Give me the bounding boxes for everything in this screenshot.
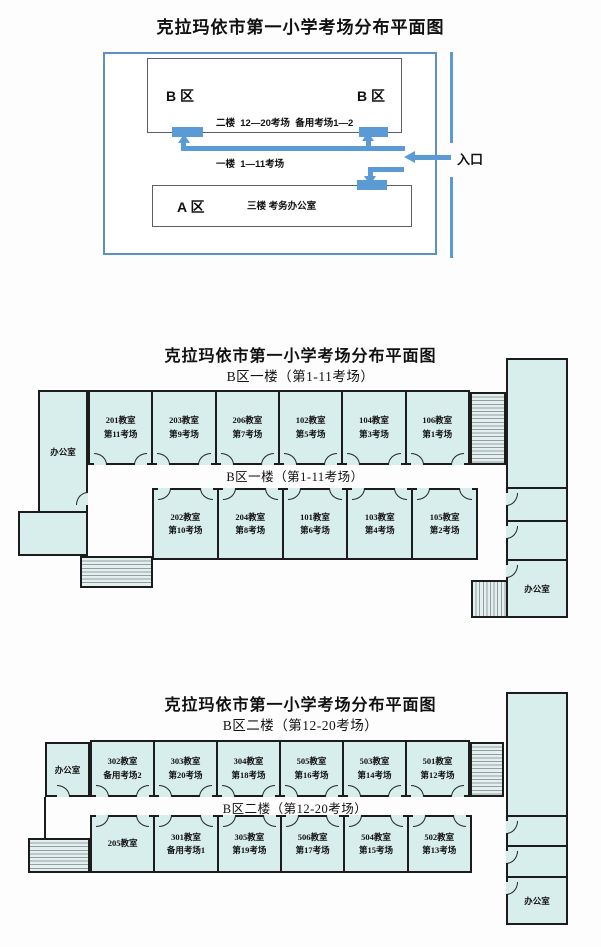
door-arc [288, 488, 301, 500]
exam-room: 103教室第4考场 [348, 490, 413, 558]
room-number: 106教室 [422, 414, 452, 427]
door-arc [94, 453, 107, 465]
floor2-top-row: 302教室备用考场2303教室第20考场304教室第18考场505教室第16考场… [90, 740, 470, 797]
floor1-stairs-bottom-right [471, 580, 508, 618]
door-arc [265, 488, 278, 500]
floor1-section: 克拉玛依市第一小学考场分布平面图 B区一楼（第1-11考场） 办公室 201教室… [0, 310, 601, 655]
room-number: 201教室 [104, 414, 138, 427]
room-label: 503教室第14考场 [357, 755, 391, 781]
room-label: 303教室第20考场 [168, 755, 202, 781]
wing-room [508, 487, 566, 520]
room-number: 503教室 [357, 755, 391, 768]
exam-room: 101教室第6考场 [284, 490, 349, 558]
floor2-office-left: 办公室 [45, 742, 90, 797]
door-arc [411, 453, 424, 465]
room-session: 第15考场 [359, 844, 393, 857]
exam-room: 203教室第9考场 [153, 392, 216, 463]
fence-bottom [450, 177, 453, 258]
room-number: 203教室 [169, 414, 199, 427]
room-session: 第8考场 [235, 524, 265, 537]
room-number: 103教室 [365, 511, 395, 524]
room-label: 103教室第4考场 [365, 511, 395, 537]
room-session: 第7考场 [232, 428, 262, 441]
door-arc [451, 453, 464, 465]
room-label: 201教室第11考场 [104, 414, 138, 440]
room-label: 506教室第17考场 [296, 831, 330, 857]
exam-room: 206教室第7考场 [217, 392, 280, 463]
exam-room: 202教室第10考场 [154, 490, 219, 558]
door-arc [394, 488, 407, 500]
room-number: 102教室 [296, 414, 326, 427]
room-number: 305教室 [232, 831, 266, 844]
door-arc [159, 815, 172, 827]
door-arc [221, 453, 234, 465]
exam-room: 104教室第3考场 [343, 392, 406, 463]
exam-room: 504教室第15考场 [345, 817, 408, 871]
door-arc [348, 785, 361, 797]
door-arc [263, 815, 276, 827]
door-arc [286, 815, 299, 827]
entrance-label: 入口 [457, 149, 483, 168]
door-arc [159, 785, 172, 797]
room-label: 203教室第9考场 [169, 414, 199, 440]
a-route-bar [368, 167, 404, 172]
door-arc [506, 526, 518, 539]
floor-plan-page: 克拉玛依市第一小学考场分布平面图 B 区 二楼 12—20考场 备用考场1—2 … [0, 0, 601, 947]
room-number: 505教室 [294, 755, 328, 768]
room-number: 301教室 [167, 831, 205, 844]
floor2-right-wing: 办公室 [506, 692, 568, 925]
room-number: 502教室 [422, 831, 456, 844]
door-arc [96, 785, 109, 797]
floor2-office-right: 办公室 [508, 876, 566, 923]
overview-title: 克拉玛依市第一小学考场分布平面图 [0, 13, 601, 38]
entrance-arrow-bar [415, 155, 451, 160]
floor2-section: 克拉玛依市第一小学考场分布平面图 B区二楼（第12-20考场） 办公室 302教… [0, 655, 601, 947]
wing-room [508, 815, 566, 845]
a-building-info: 三楼 考务办公室 [247, 200, 316, 214]
door-arc [329, 488, 342, 500]
door-arc [76, 492, 88, 505]
room-session: 第6考场 [300, 524, 330, 537]
room-session: 第20考场 [168, 769, 202, 782]
room-session: 第17考场 [296, 844, 330, 857]
room-session: 第9考场 [169, 428, 199, 441]
room-number: 202教室 [168, 511, 202, 524]
office-label: 办公室 [50, 446, 76, 458]
door-arc [459, 488, 472, 500]
floor1-bottom-row: 202教室第10考场204教室第8考场101教室第6考场103教室第4考场105… [152, 488, 478, 560]
room-session: 第3考场 [359, 428, 389, 441]
door-arc [262, 785, 275, 797]
door-arc [222, 785, 235, 797]
door-arc [157, 453, 170, 465]
room-number: 206教室 [232, 414, 262, 427]
door-arc [506, 493, 518, 506]
arrow-up-right-icon [362, 132, 374, 141]
exam-room: 501教室第12考场 [407, 742, 468, 795]
room-session: 备用考场1 [167, 844, 205, 857]
exam-room: 106教室第1考场 [407, 392, 468, 463]
room-session: 第13考场 [422, 844, 456, 857]
door-arc [199, 785, 212, 797]
floor1-stairs-left [80, 556, 153, 588]
room-label: 505教室第16考场 [294, 755, 328, 781]
floor1-corridor-label: B区一楼（第1-11考场） [120, 466, 470, 485]
floor2-stairs-left [28, 838, 90, 873]
route-bar [181, 146, 405, 151]
room-label: 504教室第15考场 [359, 831, 393, 857]
door-arc [506, 851, 518, 864]
room-label: 301教室备用考场1 [167, 831, 205, 857]
wing-room [508, 520, 566, 559]
b-info-line2: 一楼 1—11考场 [216, 158, 353, 172]
room-session: 第16考场 [294, 769, 328, 782]
door-arc [57, 785, 70, 797]
room-session: 第18考场 [231, 769, 265, 782]
exam-room: 305教室第19考场 [219, 817, 282, 871]
room-label: 204教室第8考场 [235, 511, 265, 537]
room-label: 304教室第18考场 [231, 755, 265, 781]
room-number: 204教室 [235, 511, 265, 524]
door-arc [324, 453, 337, 465]
room-label: 102教室第5考场 [296, 414, 326, 440]
door-arc [134, 453, 147, 465]
exam-room: 301教室备用考场1 [155, 817, 218, 871]
fence-top [450, 52, 453, 143]
room-session: 第10考场 [168, 524, 202, 537]
floor1-office-left: 办公室 [38, 390, 88, 513]
a-door [357, 180, 387, 190]
door-arc [347, 453, 360, 465]
door-arc [388, 785, 401, 797]
office-label: 办公室 [524, 895, 550, 907]
room-label: 104教室第3考场 [359, 414, 389, 440]
arrow-left-entrance-icon [404, 151, 415, 163]
door-arc [388, 453, 401, 465]
floor2-plan: 办公室 302教室备用考场2303教室第20考场304教室第18考场505教室第… [0, 740, 601, 940]
arrow-up-left-icon [178, 134, 190, 143]
door-arc [417, 488, 430, 500]
room-session: 第11考场 [104, 428, 138, 441]
room-number: 506教室 [296, 831, 330, 844]
office-label: 办公室 [55, 764, 81, 776]
room-session: 第14考场 [357, 769, 391, 782]
room-number: 501教室 [420, 755, 454, 768]
exam-room: 303教室第20考场 [155, 742, 218, 795]
exam-room: 502教室第13考场 [409, 817, 470, 871]
room-number: 205教室 [108, 837, 138, 850]
exam-room: 506教室第17考场 [282, 817, 345, 871]
exam-room: 102教室第5考场 [280, 392, 343, 463]
exam-room: 205教室 [92, 817, 155, 871]
floor1-left-annex [18, 511, 88, 556]
room-number: 101教室 [300, 511, 330, 524]
door-arc [198, 453, 211, 465]
exam-room: 304教室第18考场 [218, 742, 281, 795]
door-arc [326, 815, 339, 827]
b-building-info: 二楼 12—20考场 备用考场1—2 一楼 1—11考场 [216, 89, 353, 199]
room-number: 302教室 [103, 755, 141, 768]
room-label: 502教室第13考场 [422, 831, 456, 857]
room-session: 第12考场 [420, 769, 454, 782]
floor2-stairs-right [470, 742, 504, 797]
room-session: 第2考场 [430, 524, 460, 537]
door-arc [390, 815, 403, 827]
room-label: 205教室 [108, 837, 138, 850]
b-zone-left-label: B 区 [166, 86, 194, 106]
exam-room: 302教室备用考场2 [92, 742, 155, 795]
b-info-line1: 二楼 12—20考场 备用考场1—2 [216, 117, 353, 131]
room-session: 第5考场 [296, 428, 326, 441]
a-zone-label: A 区 [177, 197, 204, 217]
room-number: 304教室 [231, 755, 265, 768]
room-label: 101教室第6考场 [300, 511, 330, 537]
door-arc [506, 882, 518, 895]
room-number: 504教室 [359, 831, 393, 844]
route-stem-right [366, 140, 371, 148]
floor1-right-wing: 办公室 [506, 358, 568, 618]
room-label: 305教室第19考场 [232, 831, 266, 857]
overview-section: 克拉玛依市第一小学考场分布平面图 B 区 二楼 12—20考场 备用考场1—2 … [0, 0, 601, 310]
room-label: 105教室第2考场 [430, 511, 460, 537]
door-arc [506, 821, 518, 834]
door-arc [413, 815, 426, 827]
wing-room [508, 694, 566, 815]
door-arc [136, 785, 149, 797]
door-arc [285, 785, 298, 797]
door-arc [325, 785, 338, 797]
floor1-top-row: 201教室第11考场203教室第9考场206教室第7考场102教室第5考场104… [88, 390, 470, 465]
wall-segment [44, 797, 46, 838]
door-arc [349, 815, 362, 827]
door-arc [451, 785, 464, 797]
b-zone-right-label: B 区 [357, 86, 385, 106]
wing-room [508, 845, 566, 876]
room-number: 105教室 [430, 511, 460, 524]
door-arc [200, 488, 213, 500]
room-session: 第1考场 [422, 428, 452, 441]
door-arc [284, 453, 297, 465]
room-number: 303教室 [168, 755, 202, 768]
room-label: 302教室备用考场2 [103, 755, 141, 781]
floor1-plan: 办公室 201教室第11考场203教室第9考场206教室第7考场102教室第5考… [0, 390, 601, 630]
exam-room: 105教室第2考场 [413, 490, 476, 558]
exam-room: 204教室第8考场 [219, 490, 284, 558]
wing-room [508, 360, 566, 487]
exam-room: 505教室第16考场 [281, 742, 344, 795]
floor2-bottom-row: 205教室301教室备用考场1305教室第19考场506教室第17考场504教室… [90, 815, 472, 873]
room-session: 第19考场 [232, 844, 266, 857]
room-label: 501教室第12考场 [420, 755, 454, 781]
door-arc [261, 453, 274, 465]
room-number: 104教室 [359, 414, 389, 427]
door-arc [352, 488, 365, 500]
room-label: 202教室第10考场 [168, 511, 202, 537]
door-arc [411, 785, 424, 797]
door-arc [158, 488, 171, 500]
door-arc [223, 815, 236, 827]
office-label: 办公室 [524, 583, 550, 595]
door-arc [506, 565, 518, 578]
room-session: 备用考场2 [103, 769, 141, 782]
room-session: 第4考场 [365, 524, 395, 537]
door-arc [200, 815, 213, 827]
floor1-office-right: 办公室 [508, 559, 566, 616]
room-label: 206教室第7考场 [232, 414, 262, 440]
door-arc [136, 815, 149, 827]
door-arc [223, 488, 236, 500]
room-label: 106教室第1考场 [422, 414, 452, 440]
floor1-stairs-right [470, 392, 506, 465]
exam-room: 201教室第11考场 [90, 392, 153, 463]
door-arc [96, 815, 109, 827]
door-arc [453, 815, 466, 827]
exam-room: 503教室第14考场 [344, 742, 407, 795]
